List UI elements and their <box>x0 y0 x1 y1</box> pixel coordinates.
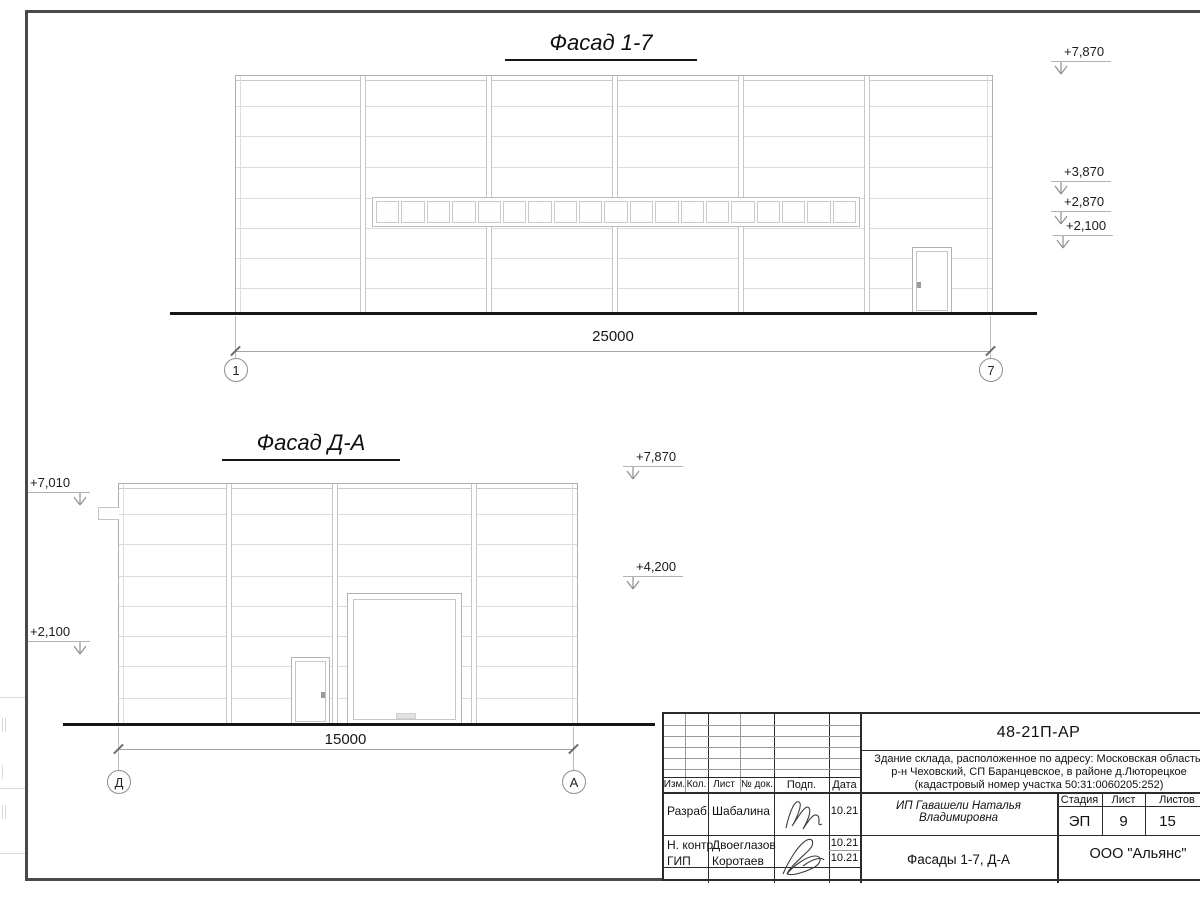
facade-da-building <box>118 483 578 726</box>
window-pane <box>604 201 627 223</box>
stage-value: ЭП <box>1057 808 1102 834</box>
column-line <box>612 76 618 314</box>
panel-joint <box>119 514 577 515</box>
entrance-door <box>912 247 952 315</box>
gate-leaf <box>353 599 456 720</box>
sheet-label: Лист <box>1102 793 1145 806</box>
level-arrow-icon <box>624 467 642 481</box>
level-value: +2,870 <box>1064 194 1111 209</box>
date-gip: 10.21 <box>829 851 860 865</box>
drawing-name: Фасады 1-7, Д-А <box>860 838 1057 881</box>
level-arrow-icon <box>71 642 89 656</box>
description-line: р-н Чеховский, СП Баранцевское, в районе… <box>864 766 1200 779</box>
date-normcontrol: 10.21 <box>829 836 860 850</box>
column-line <box>226 484 232 725</box>
name-gip: Коротаев <box>712 853 774 868</box>
signature <box>777 836 827 880</box>
door-handle <box>321 692 325 698</box>
window-pane <box>376 201 399 223</box>
column-line <box>332 484 338 725</box>
ground-line <box>170 312 1037 315</box>
role-developer: Разраб. <box>667 802 709 820</box>
window-pane <box>503 201 526 223</box>
role-gip: ГИП <box>667 853 709 868</box>
window-pane <box>528 201 551 223</box>
sheets-total-value: 15 <box>1145 808 1190 834</box>
stage-label: Стадия <box>1057 793 1102 806</box>
corner-line <box>572 484 573 725</box>
sheets-total-label: Листов <box>1145 793 1200 806</box>
dimension-text: 15000 <box>118 731 573 748</box>
client-name: ИП Гавашели Наталья Владимировна <box>862 798 1055 826</box>
column-line <box>864 76 870 314</box>
description-line: (кадастровый номер участка 50:31:0060205… <box>864 779 1200 792</box>
name-developer: Шабалина <box>712 802 774 820</box>
level-mark: +7,870 <box>1051 44 1111 62</box>
rev-header-doc: № док. <box>740 777 774 792</box>
margin-line <box>0 697 25 698</box>
column-line <box>486 76 492 314</box>
window-pane <box>452 201 475 223</box>
title-block: Изм. Кол. Лист № док. Подп. Дата Разраб.… <box>662 712 1200 881</box>
door-handle <box>917 282 921 288</box>
margin-tick <box>2 805 3 819</box>
dimension-line <box>235 351 991 352</box>
corner-line <box>240 76 241 314</box>
level-arrow-icon <box>624 577 642 591</box>
level-mark: +7,870 <box>623 449 683 467</box>
window-pane <box>478 201 501 223</box>
description-line: Здание склада, расположенное по адресу: … <box>864 753 1200 766</box>
level-value: +7,870 <box>1064 44 1111 59</box>
axis-bubble-d: Д <box>107 770 131 794</box>
gate <box>347 593 462 726</box>
window-pane <box>807 201 830 223</box>
facade-da-title: Фасад Д-А <box>222 430 400 461</box>
rev-header-izm: Изм. <box>664 777 685 792</box>
window-pane <box>706 201 729 223</box>
project-description: Здание склада, расположенное по адресу: … <box>864 753 1200 791</box>
dimension-text: 25000 <box>235 328 991 345</box>
window-pane <box>757 201 780 223</box>
column-line <box>471 484 477 725</box>
level-mark: +2,100 <box>28 624 90 642</box>
facade-1-7-building <box>235 75 993 315</box>
level-mark: +4,200 <box>623 559 683 577</box>
window-pane <box>782 201 805 223</box>
rev-header-list: Лист <box>708 777 740 792</box>
margin-line <box>0 788 25 789</box>
ground-line <box>63 723 655 726</box>
date-developer: 10.21 <box>829 802 860 820</box>
window-pane <box>427 201 450 223</box>
window-pane <box>681 201 704 223</box>
dimension-line <box>118 749 573 750</box>
margin-tick <box>5 718 6 732</box>
window-pane <box>579 201 602 223</box>
window-pane <box>731 201 754 223</box>
level-value: +7,010 <box>30 475 90 490</box>
side-door <box>291 657 330 726</box>
level-arrow-icon <box>1054 236 1072 250</box>
level-value: +2,100 <box>30 624 90 639</box>
door-leaf <box>916 251 948 311</box>
doc-number: 48-21П-АР <box>860 717 1200 749</box>
margin-line <box>0 853 25 854</box>
company-name: ООО "Альянс" <box>1059 832 1200 875</box>
margin-tick <box>5 805 6 819</box>
level-mark: +2,870 <box>1051 194 1111 212</box>
level-mark: +3,870 <box>1051 164 1111 182</box>
axis-bubble-a: А <box>562 770 586 794</box>
level-arrow-icon <box>71 493 89 507</box>
ribbon-window <box>372 197 860 227</box>
drawing-sheet: Фасад 1-7 <box>0 0 1200 900</box>
frame-left <box>25 10 28 881</box>
axis-bubble-7: 7 <box>979 358 1003 382</box>
gate-handle <box>396 713 416 719</box>
signature <box>782 796 826 834</box>
sheet-number: 9 <box>1102 808 1145 834</box>
facade-1-7-title: Фасад 1-7 <box>505 30 697 61</box>
window-pane <box>630 201 653 223</box>
corner-line <box>987 76 988 314</box>
margin-tick <box>2 765 3 779</box>
column-line <box>738 76 744 314</box>
corner-line <box>123 484 124 725</box>
level-mark: +2,100 <box>1053 218 1113 236</box>
level-mark: +7,010 <box>28 475 90 493</box>
frame-top <box>25 10 1200 13</box>
rev-header-kol: Кол. <box>685 777 708 792</box>
canopy <box>98 507 119 520</box>
level-value: +7,870 <box>636 449 683 464</box>
level-value: +2,100 <box>1066 218 1113 233</box>
margin-tick <box>2 718 3 732</box>
window-pane <box>655 201 678 223</box>
window-pane <box>401 201 424 223</box>
panel-joint <box>119 576 577 577</box>
level-arrow-icon <box>1052 62 1070 76</box>
parapet-line <box>119 488 577 489</box>
name-normcontrol: Двоеглазов <box>712 837 776 852</box>
panel-joint <box>119 544 577 545</box>
rev-header-podp: Подп. <box>774 777 829 792</box>
column-line <box>360 76 366 314</box>
axis-bubble-1: 1 <box>224 358 248 382</box>
window-pane <box>554 201 577 223</box>
level-value: +3,870 <box>1064 164 1111 179</box>
level-value: +4,200 <box>636 559 683 574</box>
window-pane <box>833 201 856 223</box>
rev-header-data: Дата <box>829 777 860 792</box>
